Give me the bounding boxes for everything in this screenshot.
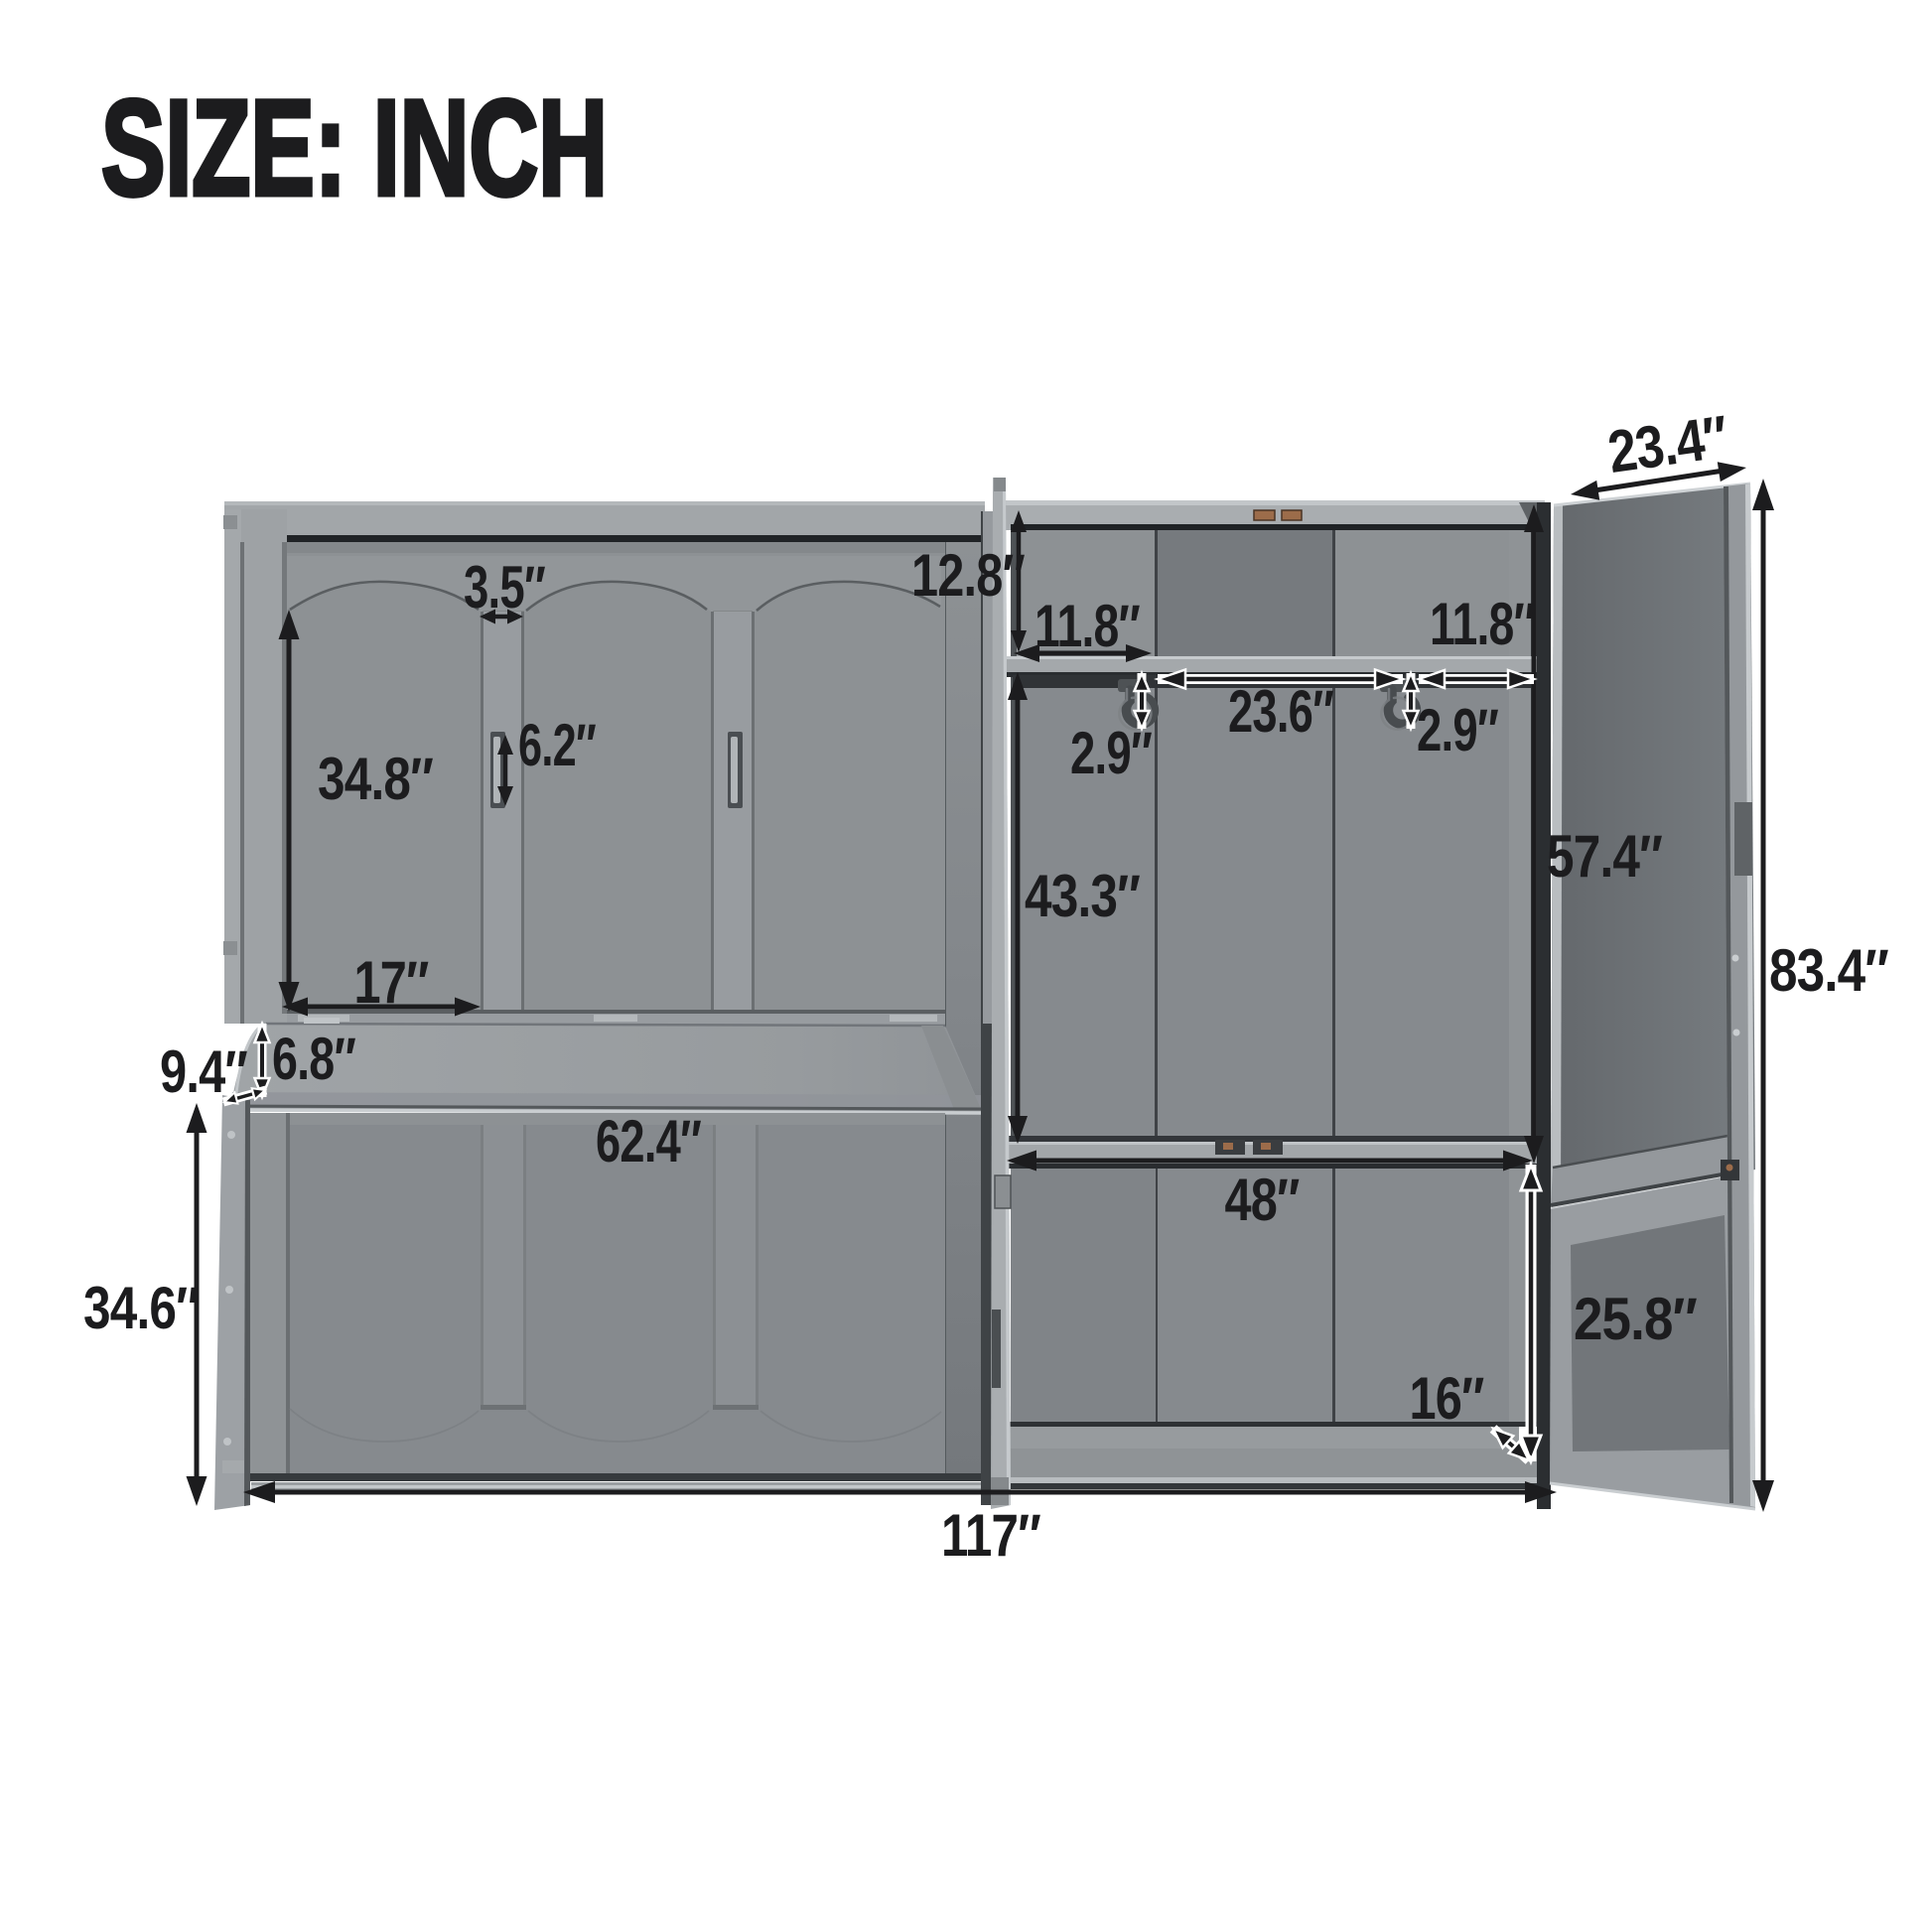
- svg-text:48″: 48″: [1225, 1167, 1300, 1233]
- svg-text:2.9″: 2.9″: [1070, 720, 1152, 786]
- svg-text:3.5″: 3.5″: [464, 554, 545, 621]
- svg-text:2.9″: 2.9″: [1417, 697, 1498, 763]
- svg-text:17″: 17″: [354, 949, 429, 1016]
- svg-text:6.8″: 6.8″: [272, 1026, 355, 1092]
- svg-text:12.8″: 12.8″: [911, 542, 1025, 609]
- svg-text:23.6″: 23.6″: [1228, 678, 1333, 745]
- svg-text:62.4″: 62.4″: [596, 1108, 701, 1174]
- svg-text:117″: 117″: [941, 1502, 1040, 1569]
- svg-text:34.8″: 34.8″: [318, 746, 433, 812]
- svg-text:SIZE: INCH: SIZE: INCH: [101, 72, 608, 224]
- svg-text:6.2″: 6.2″: [518, 712, 596, 778]
- svg-text:16″: 16″: [1410, 1365, 1484, 1432]
- svg-text:9.4″: 9.4″: [160, 1038, 247, 1105]
- svg-text:25.8″: 25.8″: [1574, 1286, 1697, 1352]
- svg-text:11.8″: 11.8″: [1430, 591, 1535, 657]
- svg-text:34.6″: 34.6″: [83, 1275, 199, 1341]
- svg-text:57.4″: 57.4″: [1547, 823, 1662, 890]
- svg-text:83.4″: 83.4″: [1769, 937, 1888, 1004]
- svg-text:11.8″: 11.8″: [1035, 593, 1140, 659]
- svg-text:43.3″: 43.3″: [1025, 863, 1140, 929]
